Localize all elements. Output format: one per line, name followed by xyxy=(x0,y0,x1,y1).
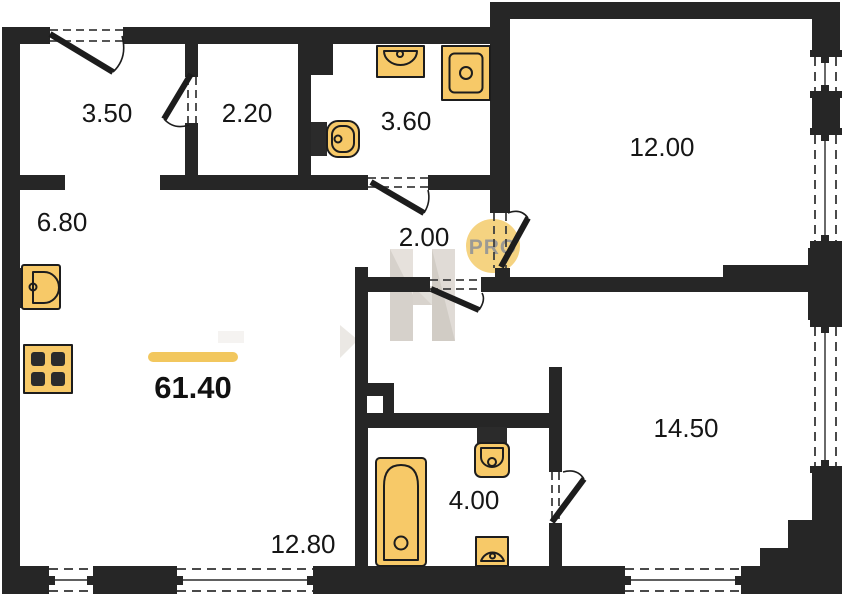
stove-icon xyxy=(24,345,72,393)
room-area-label-hallway: 2.00 xyxy=(399,222,450,252)
toilet-icon xyxy=(311,121,359,157)
toilet-icon xyxy=(475,427,509,477)
window xyxy=(625,569,741,591)
entrance-door xyxy=(50,30,124,72)
bathroom-door xyxy=(552,471,584,522)
window xyxy=(177,569,313,591)
room-area-label-bedroom-top: 12.00 xyxy=(629,132,694,162)
room-area-label-bathroom: 4.00 xyxy=(449,485,500,515)
bathtub-icon xyxy=(376,458,426,566)
window xyxy=(815,57,836,91)
washbasin-icon xyxy=(377,46,424,77)
watermark-letter-h-icon xyxy=(218,249,455,358)
room-area-label-shower-room: 3.60 xyxy=(381,106,432,136)
room-area-label-wardrobe: 2.20 xyxy=(222,98,273,128)
total-area-label: 61.40 xyxy=(154,370,232,405)
shower-tray-icon xyxy=(442,46,490,100)
window xyxy=(49,569,93,591)
room-area-label-kitchen: 6.80 xyxy=(37,207,88,237)
kitchen-sink-icon xyxy=(18,265,60,309)
wardrobe-door xyxy=(164,74,196,127)
room-area-label-entry-hall: 3.50 xyxy=(82,98,133,128)
window xyxy=(815,327,836,466)
window xyxy=(815,135,836,241)
floor-plan: PRO xyxy=(0,0,842,600)
total-area: 61.40 xyxy=(148,352,238,405)
total-area-accent-bar xyxy=(148,352,238,362)
washbasin-icon xyxy=(476,537,508,566)
room-area-label-living-room: 12.80 xyxy=(270,529,335,559)
shower-room-door xyxy=(368,178,429,213)
room-area-label-bedroom-bottom: 14.50 xyxy=(653,413,718,443)
